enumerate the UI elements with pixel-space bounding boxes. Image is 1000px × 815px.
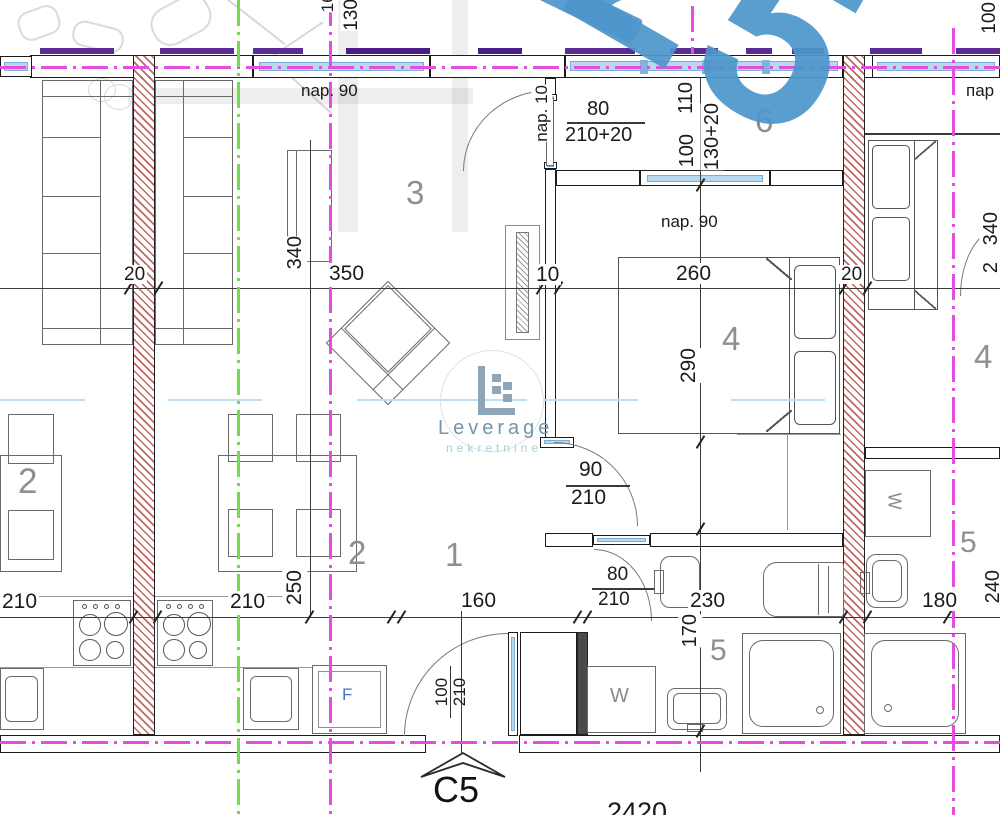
- sofa-line: [155, 328, 233, 329]
- pillow: [794, 265, 836, 339]
- dim-label: 210+20: [563, 125, 634, 145]
- radiator-fins: [516, 232, 529, 333]
- dimension-line: [310, 140, 311, 617]
- ghost-shape: [144, 0, 218, 52]
- brand-name: Leverage: [438, 418, 550, 438]
- party-wall-hatch: [133, 55, 155, 735]
- dim-label: 160: [459, 590, 498, 611]
- toilet-tank: [654, 570, 664, 594]
- door-leaf: [508, 632, 518, 736]
- toilet-basin: [872, 560, 902, 602]
- dim-label: 210: [0, 591, 39, 612]
- lintel-strip: [346, 48, 430, 54]
- sofa-line: [42, 328, 133, 329]
- door-swing-arc: [554, 442, 638, 526]
- stove-knob: [188, 604, 193, 609]
- section-line: [168, 399, 262, 401]
- wall: [865, 447, 1000, 459]
- ghost-band: [452, 0, 468, 232]
- dim-label: 290: [676, 348, 701, 383]
- bathtub: [763, 562, 844, 617]
- total-dimension: 2420: [607, 799, 667, 815]
- stove-knob: [177, 604, 182, 609]
- sink-basin: [673, 693, 721, 724]
- pillow: [872, 217, 910, 281]
- wall: [519, 735, 1000, 753]
- dim-label: 230: [688, 590, 727, 611]
- section-line: [0, 399, 85, 401]
- dim-label: nap. 90: [661, 213, 718, 230]
- bathtub-line: [828, 566, 829, 613]
- party-wall-hatch: [843, 55, 865, 735]
- dim-label: 250: [282, 570, 307, 605]
- sofa-line: [155, 96, 233, 97]
- shower-drain: [816, 706, 824, 714]
- dim-label: nap. 90: [301, 82, 358, 99]
- washer-label-right: W: [885, 493, 903, 510]
- wall: [556, 170, 640, 186]
- dresser-line: [737, 434, 841, 435]
- shower-drain: [884, 704, 892, 712]
- armchair: [326, 281, 450, 405]
- wall-line: [865, 133, 1000, 135]
- wall: [0, 735, 426, 753]
- room-label-bath: 5: [710, 636, 727, 667]
- sofa-line: [183, 137, 233, 138]
- unit-code: C5: [433, 772, 479, 809]
- ghost-shape: [14, 2, 64, 45]
- lintel-strip: [956, 48, 1000, 54]
- dim-label: 260: [674, 263, 713, 284]
- stove: [157, 600, 213, 666]
- axis-magenta-h: [0, 741, 1000, 744]
- stove-knob: [199, 604, 204, 609]
- dim-label: 210: [451, 666, 468, 718]
- axis-magenta-v: [952, 28, 955, 815]
- room-label-bath-right: 5: [960, 528, 977, 559]
- sofa-line: [183, 80, 184, 345]
- blanket-fold: [914, 141, 936, 160]
- dim-label: 100: [433, 666, 451, 718]
- shower-tray: [871, 640, 959, 727]
- lintel-strip: [40, 48, 114, 54]
- chair: [228, 509, 273, 557]
- blanket-fold: [914, 290, 936, 309]
- stove-burner: [104, 612, 128, 636]
- wall: [545, 533, 593, 547]
- sofa: [155, 80, 233, 345]
- dim-label: 210: [228, 591, 267, 612]
- blanket-fold: [766, 258, 792, 280]
- pillow: [872, 145, 910, 209]
- sofa-line: [42, 253, 100, 254]
- sofa-line: [42, 96, 133, 97]
- room-label-kitchen-left: 2: [18, 464, 37, 500]
- chair: [8, 414, 54, 464]
- stove: [73, 600, 131, 666]
- axis-magenta-v: [329, 0, 332, 815]
- fridge-label: F: [342, 686, 352, 703]
- ghost-band: [338, 0, 358, 232]
- stove-burner: [187, 612, 211, 636]
- stove-burner: [163, 639, 185, 661]
- chair: [296, 509, 341, 557]
- lintel-strip: [478, 48, 522, 54]
- dimension-line: [0, 288, 1000, 289]
- shower-tray: [749, 640, 834, 727]
- sofa-line: [183, 253, 233, 254]
- lintel-strip: [160, 48, 234, 54]
- axis-green-v: [237, 0, 240, 815]
- lintel-strip: [870, 48, 922, 54]
- room-label-living: 3: [406, 176, 424, 210]
- room-label-hall: 1: [445, 538, 463, 572]
- dim-label: 210: [569, 487, 608, 508]
- sofa: [42, 80, 133, 345]
- brand-watermark: Leverage nekretnine: [436, 348, 552, 464]
- room-label-bedroom: 4: [722, 322, 740, 356]
- dim-label: 20: [839, 265, 864, 284]
- door-sill: [593, 535, 650, 545]
- wall: [520, 632, 577, 735]
- dim-label: 350: [327, 263, 366, 284]
- dim-label: 80: [605, 565, 630, 584]
- pillow: [794, 351, 836, 425]
- room-label-kitchen: 2: [348, 536, 366, 570]
- dim-label: 170: [678, 614, 702, 647]
- dim-label: 10: [534, 264, 561, 285]
- dim-label: 180: [920, 590, 959, 611]
- stove-burner: [106, 641, 124, 659]
- brand-logo-icon: [478, 408, 515, 415]
- room-label-bedroom-right: 4: [974, 340, 992, 374]
- bed-line: [914, 140, 915, 310]
- dim-label: 80: [585, 99, 611, 119]
- entry-door-label: 100 210: [433, 657, 493, 727]
- sofa-line: [183, 196, 233, 197]
- stove-knob: [115, 604, 120, 609]
- section-line: [731, 399, 825, 401]
- dim-label: 130+: [340, 0, 363, 31]
- sofa-line: [42, 196, 100, 197]
- kitchen-sink-basin: [5, 676, 38, 722]
- dresser-line: [787, 434, 788, 530]
- dim-label: 240: [981, 570, 1000, 603]
- chair: [296, 414, 341, 462]
- chair: [228, 414, 273, 462]
- brand-logo-bar: [503, 382, 512, 390]
- stove-knob: [82, 604, 87, 609]
- dimension-line: [0, 617, 1000, 618]
- dim-label: 100: [978, 2, 1000, 34]
- brand-logo-bar: [492, 386, 501, 394]
- bed-line: [789, 257, 790, 434]
- stove-knob: [166, 604, 171, 609]
- door-swing-arc: [594, 549, 652, 621]
- dim-label: 160: [317, 0, 338, 12]
- sofa-line: [42, 137, 100, 138]
- dim-label: пар: [966, 82, 994, 99]
- floor-plan: 20 340 350 10 260 20 290 110 100 130+20 …: [0, 0, 1000, 815]
- dim-label: 90: [577, 459, 604, 480]
- stove-burner: [189, 641, 207, 659]
- dim-label: 340: [979, 212, 1000, 245]
- dim-label: nap. 10: [531, 85, 552, 142]
- wall: [650, 533, 843, 547]
- dim-label: 210: [596, 590, 632, 609]
- toilet-tank: [860, 572, 870, 594]
- dim-label: 2: [979, 262, 1000, 273]
- ghost-line: [209, 0, 285, 45]
- section-line: [543, 399, 638, 401]
- stove-burner: [79, 639, 101, 661]
- brand-logo-bar: [503, 394, 512, 402]
- dim-label: 20: [122, 265, 147, 284]
- stove-knob: [93, 604, 98, 609]
- kitchen-sink-basin: [250, 676, 292, 722]
- chair: [8, 510, 54, 560]
- brand-subname: nekretnine: [444, 442, 544, 454]
- dim-label: 340: [283, 236, 307, 269]
- lintel-strip: [253, 48, 303, 54]
- stove-knob: [104, 604, 109, 609]
- sofa-line: [100, 80, 101, 345]
- blanket-fold: [766, 410, 792, 432]
- brand-logo-bar: [492, 374, 501, 382]
- bathtub-line: [818, 564, 819, 615]
- washer-label: W: [610, 686, 629, 706]
